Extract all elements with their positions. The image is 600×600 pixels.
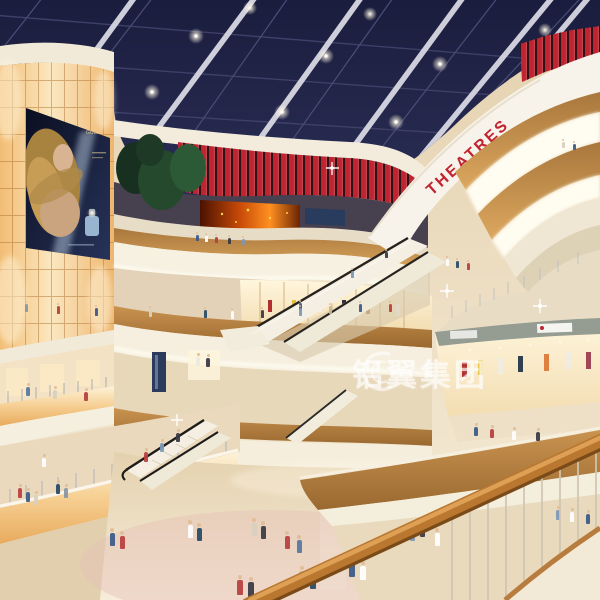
- left-light-wall: GUERLAIN: [0, 43, 114, 350]
- shop-sign-1: [450, 330, 477, 339]
- atrium-architecture: GUERLAIN THEATRES: [0, 0, 600, 600]
- vertical-banner: [152, 352, 166, 392]
- mall-atrium-rendering: GUERLAIN THEATRES: [0, 0, 600, 600]
- blue-led-screen: [305, 208, 345, 226]
- model-face: [53, 144, 73, 172]
- mannequin-display: [188, 350, 220, 380]
- watermark-logo: [352, 340, 402, 396]
- watermark: 铝翼集团: [352, 340, 562, 404]
- perfume-bottle: [85, 216, 99, 236]
